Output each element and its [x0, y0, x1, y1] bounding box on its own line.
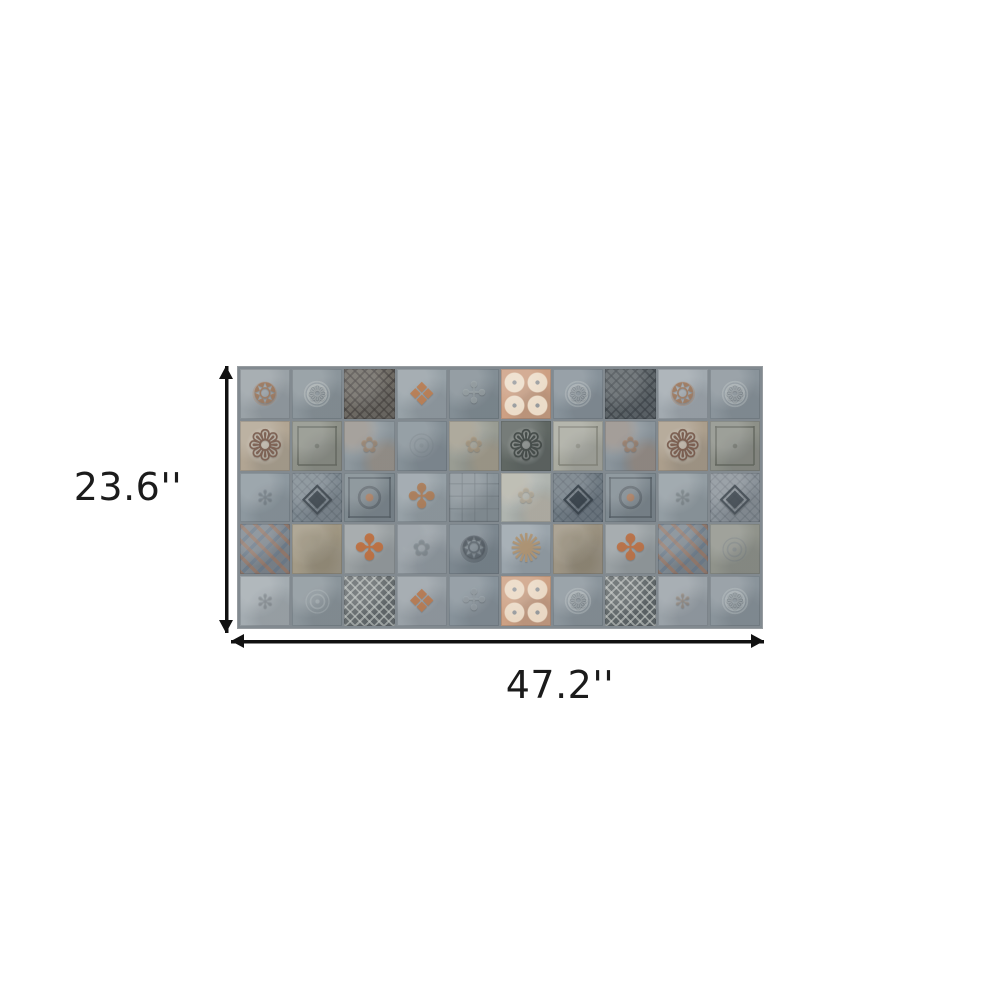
damask-ornament-icon: ✿ [360, 435, 378, 457]
mosaic-tile-rings [292, 576, 342, 626]
quatrefoil-ornament-icon: ✣ [461, 586, 486, 616]
plain-ornament-icon: ✻ [257, 591, 274, 611]
mosaic-tile-quatrefoil: ✣ [449, 576, 499, 626]
plain-ornament-icon: ✻ [257, 487, 274, 507]
diamondlattice-ornament-icon: ◈ [563, 477, 594, 517]
quatrefoil-ornament-icon: ✣ [461, 379, 486, 409]
damask-ornament-icon: ✿ [465, 435, 483, 457]
mosaic-tile-snowflake: ❁ [240, 421, 290, 471]
mosaic-tile-damask: ✿ [397, 524, 447, 574]
mosaic-tile-plain: ✻ [240, 473, 290, 523]
clover-ornament-icon: ✤ [407, 480, 436, 514]
product-dimension-diagram: 23.6'' ❂❁❖✣❁❂❁❁✿✿❁✿❁✻◈✤✿◈✻◈✤✿❂✺✤✻❖✣❁✻❁ 4… [0, 0, 1000, 1000]
mosaic-tile-plain: ✻ [240, 576, 290, 626]
mosaic-tile-circlesquare [605, 473, 655, 523]
mosaic-tile-wreath: ❁ [553, 576, 603, 626]
mosaic-tile-wreath: ❁ [292, 369, 342, 419]
lacemedallion-ornament-icon: ❂ [461, 534, 486, 564]
mosaic-tile-rings [397, 421, 447, 471]
plain-ornament-icon: ✻ [674, 591, 691, 611]
snowflake-ornament-icon: ❁ [247, 425, 282, 467]
snowflake-ornament-icon: ❁ [665, 425, 700, 467]
diamondlattice-ornament-icon: ◈ [720, 477, 751, 517]
wreath-ornament-icon: ❁ [725, 589, 745, 613]
mosaic-tile-damask: ✿ [501, 473, 551, 523]
mosaic-tile-medallion: ❂ [658, 369, 708, 419]
mosaic-tile-wreath: ❁ [553, 369, 603, 419]
mosaic-tile-rings [710, 524, 760, 574]
medallion-ornament-icon: ❂ [253, 380, 276, 408]
mosaic-tile-damask: ✿ [344, 421, 394, 471]
starburst-ornament-icon: ✺ [509, 529, 543, 569]
mosaic-tile-diamondlattice: ◈ [710, 473, 760, 523]
mosaic-tile-frame [553, 421, 603, 471]
mosaic-tile-diamondlattice: ◈ [553, 473, 603, 523]
mosaic-tile-frame [710, 421, 760, 471]
diamondfloral-ornament-icon: ❖ [407, 585, 436, 617]
mosaic-tile-starlattice [344, 576, 394, 626]
height-arrow-icon [219, 366, 234, 633]
damask-ornament-icon: ✿ [621, 435, 639, 457]
mosaic-tile-plain: ✻ [658, 576, 708, 626]
wreath-ornament-icon: ❁ [568, 382, 588, 406]
snowflake-ornament-icon: ❁ [508, 425, 543, 467]
tile-mural-panel: ❂❁❖✣❁❂❁❁✿✿❁✿❁✻◈✤✿◈✻◈✤✿❂✺✤✻❖✣❁✻❁ [238, 367, 762, 628]
mosaic-tile-crossfloral: ✤ [344, 524, 394, 574]
mosaic-tile-argyle [240, 524, 290, 574]
mosaic-tile-starlattice [605, 576, 655, 626]
mosaic-tile-starburst: ✺ [501, 524, 551, 574]
mosaic-tile-snowflake: ❁ [658, 421, 708, 471]
mosaic-tile-snowflake: ❁ [501, 421, 551, 471]
mosaic-tile-frame [292, 421, 342, 471]
mosaic-tile-starlattice [605, 369, 655, 419]
mosaic-tile-mottle [292, 524, 342, 574]
crossfloral-ornament-icon: ✤ [354, 531, 384, 567]
diamondlattice-ornament-icon: ◈ [302, 477, 333, 517]
damask-ornament-icon: ✿ [412, 538, 430, 560]
plain-ornament-icon: ✻ [674, 487, 691, 507]
mosaic-tile-clover: ✤ [397, 473, 447, 523]
mosaic-tile-diamondfloral: ❖ [397, 576, 447, 626]
diamondfloral-ornament-icon: ❖ [407, 378, 436, 410]
mosaic-tile-crossfloral: ✤ [605, 524, 655, 574]
medallion-ornament-icon: ❂ [671, 380, 694, 408]
mosaic-tile-circlesquare [344, 473, 394, 523]
damask-ornament-icon: ✿ [517, 486, 535, 508]
mosaic-tile-quatrefoil: ✣ [449, 369, 499, 419]
wreath-ornament-icon: ❁ [568, 589, 588, 613]
height-dimension-label: 23.6'' [62, 467, 194, 507]
mosaic-tile-starlattice [344, 369, 394, 419]
mosaic-tile-plain: ✻ [658, 473, 708, 523]
mosaic-tile-diamondfloral: ❖ [397, 369, 447, 419]
mosaic-tile-wreath: ❁ [710, 369, 760, 419]
mosaic-tile-mottle [553, 524, 603, 574]
mosaic-tile-rosettes [501, 369, 551, 419]
mosaic-tile-wreath: ❁ [710, 576, 760, 626]
crossfloral-ornament-icon: ✤ [615, 531, 645, 567]
mosaic-tile-argyle [658, 524, 708, 574]
mosaic-tile-rosettes [501, 576, 551, 626]
width-arrow-icon [231, 634, 764, 649]
mosaic-tile-medallion: ❂ [240, 369, 290, 419]
mosaic-tile-diamondlattice: ◈ [292, 473, 342, 523]
wreath-ornament-icon: ❁ [307, 382, 327, 406]
width-dimension-label: 47.2'' [460, 665, 660, 705]
mosaic-tile-damask: ✿ [449, 421, 499, 471]
mosaic-tile-lacemedallion: ❂ [449, 524, 499, 574]
mosaic-tile-damask: ✿ [605, 421, 655, 471]
mosaic-tile-grid [449, 473, 499, 523]
wreath-ornament-icon: ❁ [725, 382, 745, 406]
